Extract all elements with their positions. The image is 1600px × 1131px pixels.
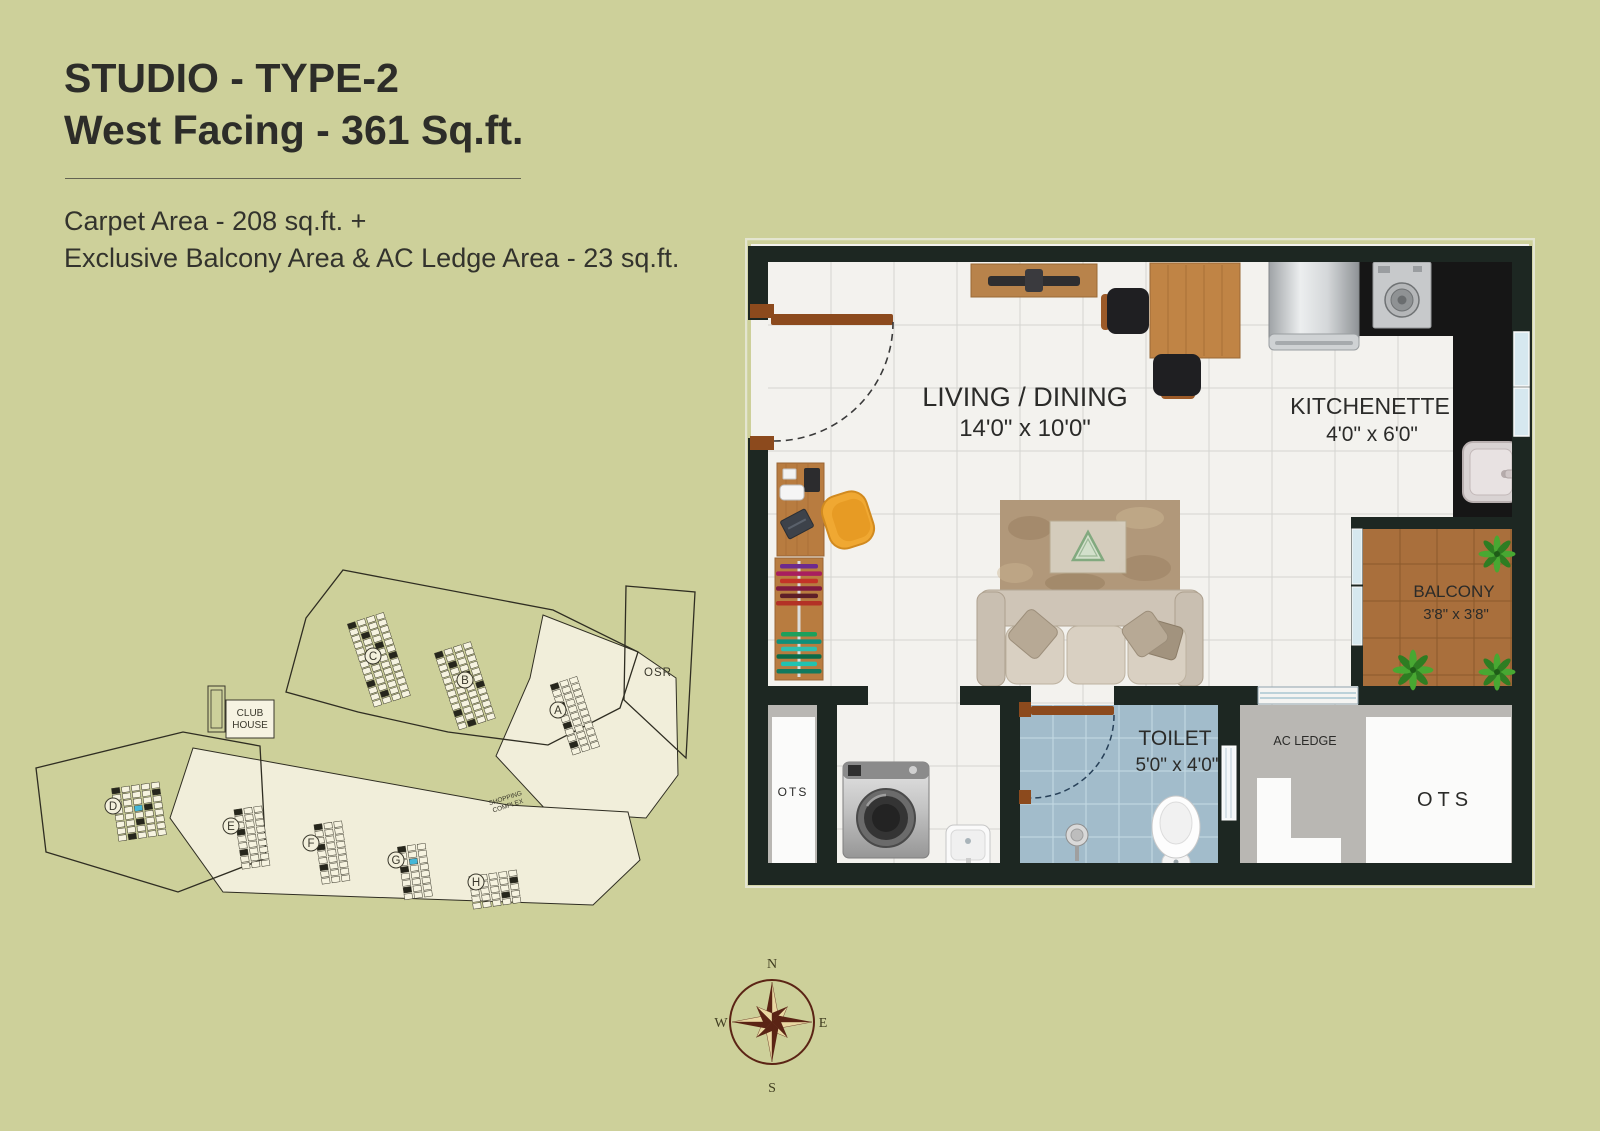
ots-left-area [768,705,817,863]
desk-phone [780,485,804,500]
block-d: D [105,798,121,814]
compass-rose: N E S W [712,946,832,1096]
club-house-label-1: CLUB [237,708,264,719]
kitchenette-label: KITCHENETTE [1290,393,1450,419]
svg-text:C: C [369,651,377,663]
compass-south: S [768,1081,776,1096]
right-wall-window-1 [1514,332,1529,386]
block-f: F [303,835,319,851]
block-e: E [223,818,239,834]
chair-bottom [1153,354,1201,399]
living-room-dims: 14'0" x 10'0" [959,415,1091,442]
ac-ledge-window [1258,687,1358,704]
block-c: C [365,648,381,664]
toilet-label: TOILET [1138,727,1211,750]
clothes-rack [775,558,823,680]
fridge [1269,260,1359,350]
block-h: H [468,874,484,890]
block-b: B [457,672,473,688]
toilet-dims: 5'0" x 4'0" [1135,755,1218,776]
brochure-page: STUDIO - TYPE-2 West Facing - 361 Sq.ft.… [0,0,1600,1131]
floor-plan: LIVING / DINING 14'0" x 10'0" KITCHENETT… [745,238,1535,888]
carpet-area-text: Carpet Area - 208 sq.ft. + [64,203,724,240]
svg-text:G: G [392,855,401,867]
svg-text:F: F [307,838,314,850]
svg-text:H: H [472,877,480,889]
living-room-label: LIVING / DINING [922,382,1128,412]
ots-left-label: OTS [778,785,809,799]
svg-text:E: E [227,821,235,833]
dining-table [1150,263,1240,358]
svg-text:D: D [109,801,117,813]
balcony-slider-2 [1352,587,1362,645]
right-wall-window-2 [1514,388,1529,436]
washing-machine [843,762,929,858]
balcony-label: BALCONY [1413,582,1494,601]
chair-left [1101,288,1149,334]
tv-unit [971,264,1097,297]
page-title-line1: STUDIO - TYPE-2 [64,52,724,104]
header: STUDIO - TYPE-2 West Facing - 361 Sq.ft.… [64,52,724,277]
svg-text:A: A [554,705,562,717]
rug [997,500,1180,595]
page-title-line2: West Facing - 361 Sq.ft. [64,104,724,156]
toilet-window [1222,746,1236,820]
balcony-slider-1 [1352,529,1362,584]
site-plan: CLUB HOUSE C B A D E F G H SHOPPING COMP… [28,560,718,925]
desk-keypad [804,468,820,492]
compass-north: N [767,957,777,972]
study-desk [777,463,824,556]
compass-star [732,982,812,1062]
club-house-label-2: HOUSE [232,720,268,731]
divider-line [65,178,521,179]
ac-ledge-area [1240,705,1362,863]
compass-east: E [819,1016,828,1031]
osr-label: OSR [644,667,672,679]
sofa [977,590,1203,686]
block-g: G [388,852,404,868]
ac-ledge-label: AC LEDGE [1273,734,1336,748]
ots-right-area [1362,705,1512,863]
club-house: CLUB HOUSE [208,686,274,738]
svg-text:B: B [461,675,469,687]
stove [1373,262,1431,328]
compass-west: W [714,1016,728,1031]
balcony-area-text: Exclusive Balcony Area & AC Ledge Area -… [64,240,724,277]
balcony-dims: 3'8" x 3'8" [1423,606,1489,623]
block-a: A [550,702,566,718]
kitchenette-dims: 4'0" x 6'0" [1326,423,1418,446]
ots-right-label: OTS [1417,789,1473,811]
